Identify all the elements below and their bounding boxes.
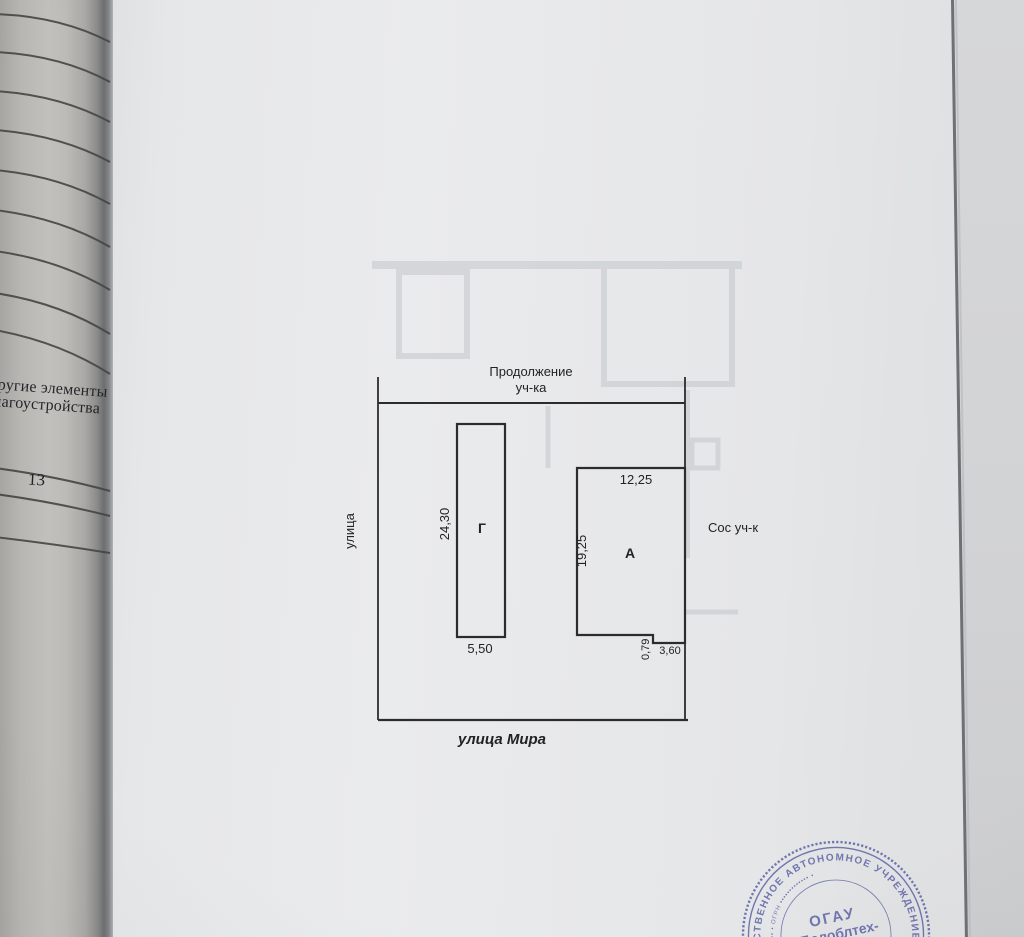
table-row-lines: [0, 0, 113, 937]
plot-continuation-label-line1: Продолжение: [489, 364, 572, 379]
site-plan: Продолжение уч-ка улица Сос уч-к улица М…: [0, 0, 1024, 937]
bleed-through-ghosts: [372, 264, 742, 612]
dimension-a-notch-width: 3,60: [659, 645, 680, 657]
plot-continuation-label-line2: уч-ка: [516, 380, 548, 395]
photo-of-document: { "left_page": { "heading1": "Другие эле…: [0, 0, 1024, 937]
street-label-bottom: улица Мира: [457, 731, 546, 748]
official-stamp: ГОСУДАРСТВЕННОЕ АВТОНОМНОЕ УЧРЕЖДЕНИЕ «Б…: [735, 832, 947, 937]
building-g-label: Г: [478, 520, 486, 536]
dimension-g-height: 24,30: [437, 508, 452, 541]
neighbor-plot-label: Сос уч-к: [708, 520, 758, 535]
previous-page-strip: Другие элементы благоустройства 13: [0, 0, 113, 937]
building-a-label: А: [625, 545, 635, 561]
plot-boundary: [378, 377, 688, 720]
dimension-a-top: 12,25: [620, 472, 653, 487]
dimension-a-notch-height: 0,79: [640, 639, 652, 660]
dimension-g-width: 5,50: [467, 641, 492, 656]
previous-page-number: 13: [27, 470, 45, 491]
street-label-left: улица: [342, 512, 357, 549]
dimension-a-height: 19,25: [574, 535, 589, 568]
